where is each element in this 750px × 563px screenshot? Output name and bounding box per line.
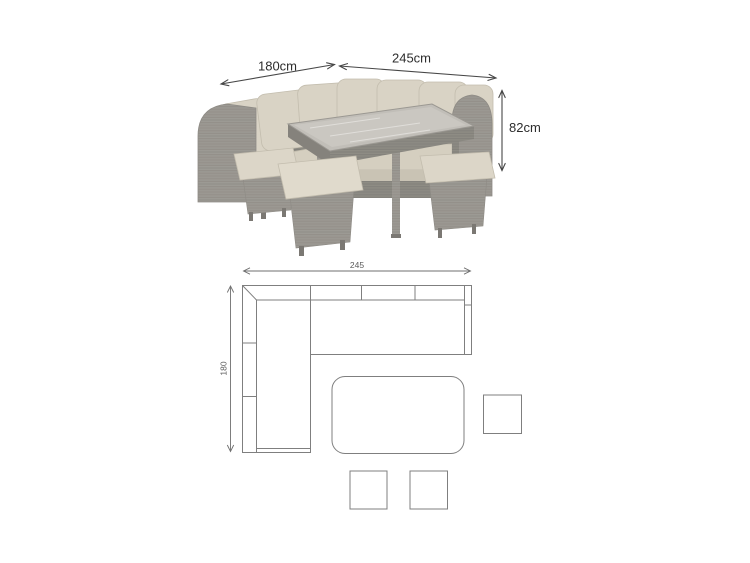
table-front-leg	[392, 149, 400, 236]
stool-leg	[438, 228, 442, 238]
stool-base	[429, 176, 487, 230]
table-foot	[391, 234, 401, 238]
schematic-stool-right	[484, 395, 522, 434]
width-dimension-label: 180cm	[258, 59, 297, 74]
stool-leg	[249, 212, 253, 221]
height-dimension-arrow-icon	[499, 91, 505, 171]
length-dimension-arrow-icon	[340, 64, 497, 81]
footstool	[420, 152, 495, 238]
schematic-depth-label: 180	[219, 361, 229, 375]
height-dimension-label: 82cm	[509, 120, 541, 135]
stool-leg	[340, 240, 345, 250]
product-dimension-diagram: 180cm 245cm 82cm 245	[0, 0, 750, 563]
stool-leg	[472, 224, 476, 234]
product-photo: 180cm 245cm 82cm	[198, 51, 541, 257]
schematic-table	[332, 377, 464, 454]
stool-leg	[299, 246, 304, 256]
stool-cushion	[420, 152, 495, 183]
stool-leg	[282, 208, 286, 217]
schematic-depth-dimension: 180	[219, 286, 234, 452]
length-dimension-label: 245cm	[392, 51, 431, 66]
schematic-top-view: 245 180	[219, 260, 522, 509]
schematic-length-label: 245	[350, 260, 364, 270]
schematic-stool-bottom-right	[410, 471, 448, 509]
schematic-stool-bottom-left	[350, 471, 387, 509]
schematic-length-dimension: 245	[244, 260, 471, 274]
